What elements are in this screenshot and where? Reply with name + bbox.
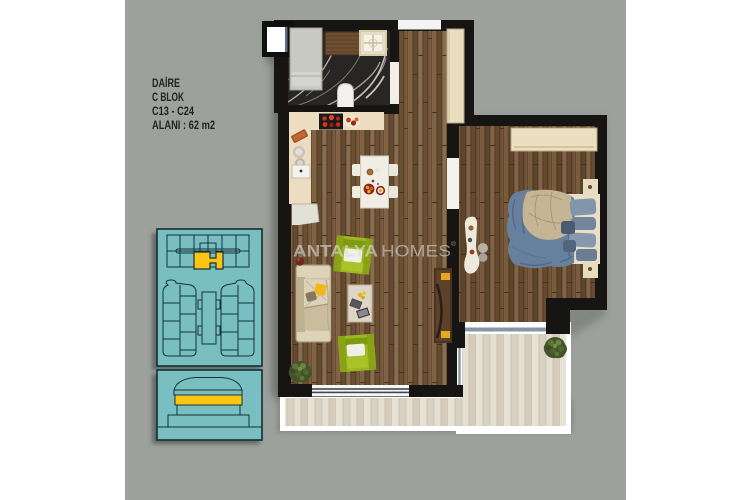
svg-text:HOMES: HOMES — [381, 242, 451, 261]
svg-text:DAİRE: DAİRE — [152, 77, 180, 90]
svg-text:®: ® — [451, 240, 456, 248]
svg-text:C BLOK: C BLOK — [152, 92, 184, 104]
svg-text:C13 - C24: C13 - C24 — [152, 106, 194, 118]
svg-text:ALANI : 62 m2: ALANI : 62 m2 — [152, 120, 215, 132]
svg-text:ANTALYA: ANTALYA — [293, 242, 378, 261]
